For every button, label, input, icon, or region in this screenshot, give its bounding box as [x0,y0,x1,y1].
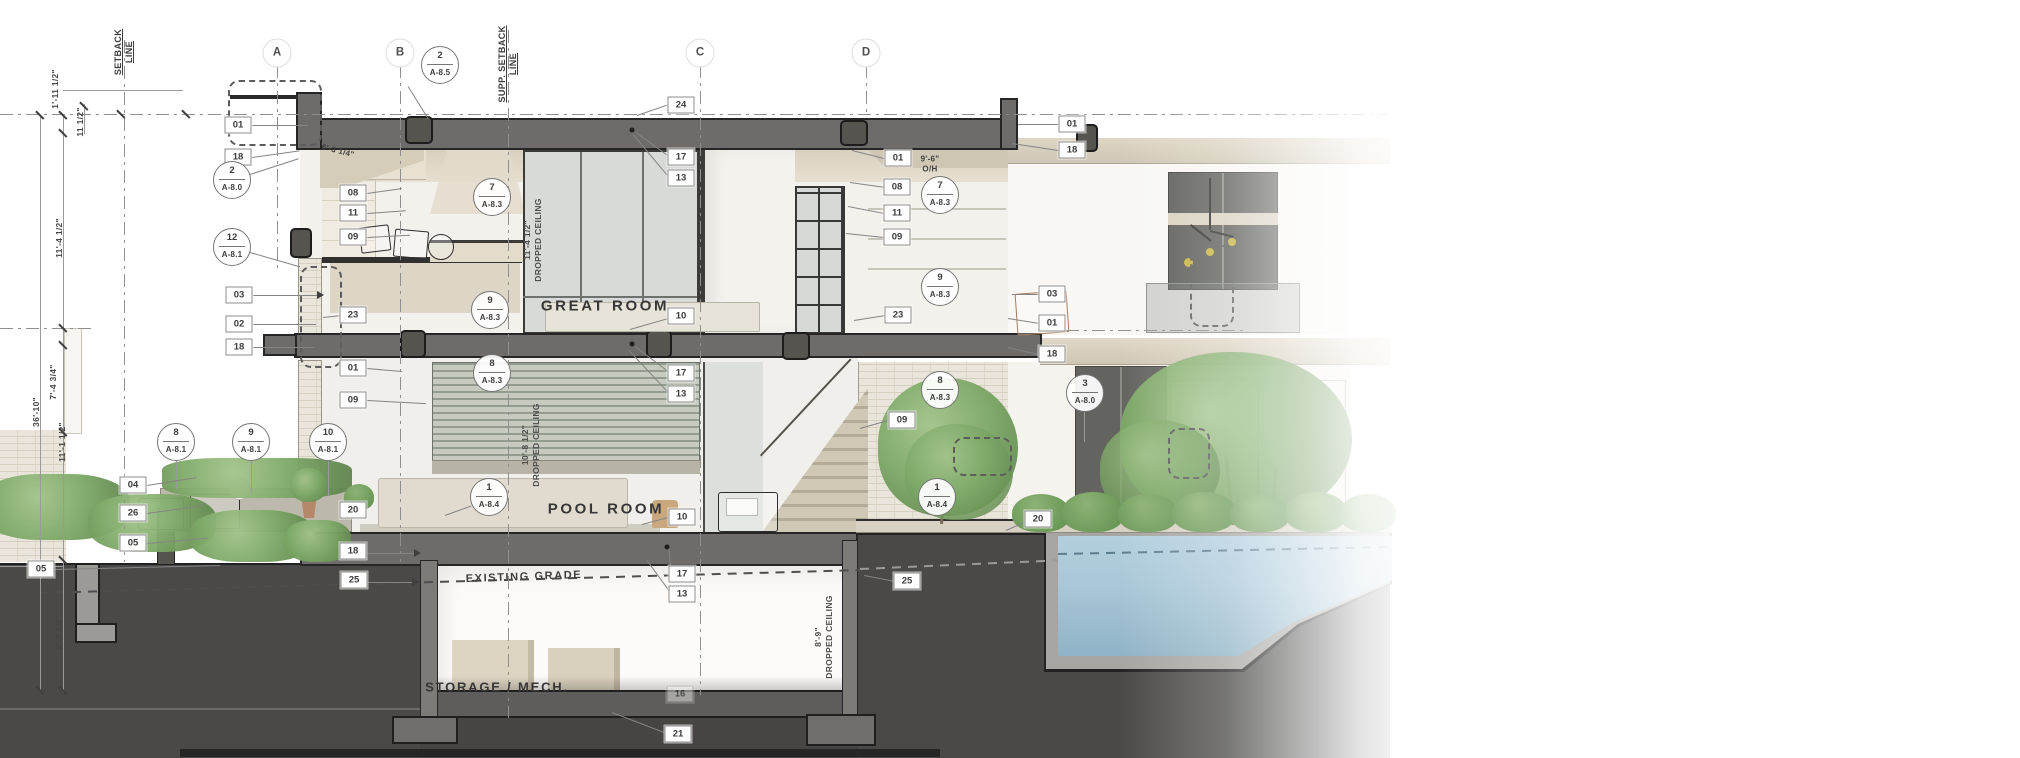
dimension-text: 11 1/2" [75,107,85,136]
detail-callout: 9A-8.1 [232,423,270,461]
ref-tag: 13 [668,386,695,403]
roof-step-right [1000,98,1018,150]
ref-tag: 09 [889,412,916,429]
ref-tag: 10 [668,308,695,325]
grid-line [866,65,867,114]
detail-box-terrace-1 [953,437,1012,476]
grid-label: C [686,39,715,68]
ceiling-note: 10'-8 1/2" DROPPED CEILING [520,403,542,486]
ref-tag: 05 [120,535,147,552]
terrace-parapet-left [64,328,82,434]
callout-sheet: A-8.3 [474,373,510,388]
grid-label: D [852,39,881,68]
ref-tag: 09 [884,229,911,246]
level-line-left [0,328,96,329]
ref-tag: 20 [1025,511,1052,528]
ref-tag: 11 [340,205,367,222]
callout-number: 10 [315,424,341,442]
ref-tag: 24 [668,97,695,114]
ref-tag: 23 [885,307,912,324]
ref-tag: 03 [1039,286,1066,303]
fade-overlay [1118,0,1428,758]
ref-tag: 20 [340,502,367,519]
detail-callout: 1A-8.4 [918,478,956,516]
detail-callout: 9A-8.3 [921,268,959,306]
detail-box-wall-left [300,266,342,368]
callout-number: 7 [927,177,953,195]
great-room-table [428,234,454,260]
callout-number: 3 [1072,375,1098,393]
detail-callout: 7A-8.3 [921,176,959,214]
pool-room-chair-cushion [726,498,758,516]
ref-tag: 17 [668,149,695,166]
ref-tag: 01 [885,150,912,167]
callout-sheet: A-8.1 [233,442,269,457]
floor-connector-door [782,332,810,360]
callout-number: 12 [219,229,245,247]
ref-tag: 02 [226,316,253,333]
retaining-wall-hill [75,563,100,625]
ref-tag: 17 [668,365,695,382]
ref-tag: 01 [1039,315,1066,332]
callout-number: 1 [476,479,502,497]
callout-sheet: A-8.3 [922,390,958,405]
wall-connector-left [290,228,312,258]
basement-wall-right [842,540,858,718]
roof-connector-c [840,120,868,146]
ref-tag: 18 [226,339,253,356]
callout-number: 2 [427,47,453,65]
detail-callout: 7A-8.3 [473,178,511,216]
annotation-text: 9'-6" O/H [921,155,940,174]
callout-sheet: A-8.1 [310,442,346,457]
balcony-nib [263,334,297,356]
callout-sheet: A-8.0 [1067,393,1103,408]
ref-tag: 25 [341,572,368,589]
detail-callout: 9A-8.3 [471,291,509,329]
callout-sheet: A-8.1 [214,247,250,262]
detail-callout: 8A-8.3 [473,354,511,392]
dimension-text: 7'-4 3/4" [48,364,58,399]
callout-number: 8 [927,372,953,390]
ext-line-top [63,90,183,91]
stone-bench [432,460,700,474]
callout-number: 2 [219,162,245,180]
ref-tag: 13 [669,586,696,603]
bottom-dark-strip [180,749,940,757]
dimension-text: 11'-4 1/2" [54,218,64,258]
dimension-text: 11'-1 1/2" [57,422,67,462]
ref-tag: 01 [1059,116,1086,133]
footing-left [392,716,458,744]
ref-tag: 09 [340,229,367,246]
ceiling-note: 8'-9" DROPPED CEILING [813,595,835,678]
ref-tag: 25 [894,573,921,590]
ref-tag: 18 [1059,142,1086,159]
detail-callout: 10A-8.1 [309,423,347,461]
building-section-drawing: ABCD SETBACK LINESUPP. SETBACK LINE 1'-1… [0,0,2020,758]
great-room-chair-2 [393,229,429,260]
callout-number: 9 [477,292,503,310]
ref-tag: 17 [669,566,696,583]
dimension-text: 1'-11 1/2" [50,69,60,109]
ref-tag: 08 [884,179,911,196]
callout-sheet: A-8.0 [214,180,250,195]
callout-number: 7 [479,179,505,197]
callout-sheet: A-8.3 [474,197,510,212]
setback-label: SUPP. SETBACK LINE [497,25,519,102]
detail-callout: 3A-8.0 [1066,374,1104,412]
callout-sheet: A-8.3 [922,287,958,302]
first-floor-slab [300,532,858,566]
callout-number: 8 [479,355,505,373]
room-label: GREAT ROOM [541,298,669,315]
footing-right [806,714,876,746]
room-label: POOL ROOM [548,501,664,518]
callout-number: 9 [927,269,953,287]
ref-tag: 03 [226,287,253,304]
ref-tag: 10 [669,509,696,526]
ref-tag: 23 [340,307,367,324]
ref-tag: 01 [225,117,252,134]
callout-number: 8 [163,424,189,442]
detail-callout: 8A-8.3 [921,371,959,409]
louver-screen [432,362,700,462]
ref-tag: 09 [340,392,367,409]
ceiling-note: 11'-4 1/2" DROPPED CEILING [522,198,544,281]
ref-tag: 18 [340,543,367,560]
detail-callout: 1A-8.4 [470,478,508,516]
detail-callout: 12A-8.1 [213,228,251,266]
ref-tag: 16 [667,686,694,703]
ground-line-left [0,708,420,710]
floor-connector-left [400,330,426,358]
french-door [795,186,845,334]
ref-tag: 11 [884,205,911,222]
ref-tag: 18 [1039,346,1066,363]
dim-line-inner [63,115,64,692]
ref-tag: 21 [665,726,692,743]
white-margin [1424,0,2020,758]
detail-callout: 8A-8.1 [157,423,195,461]
floor-connector-c [646,330,672,358]
room-label: STORAGE / MECH. [425,680,569,695]
dimension-text: 36'-10" [31,397,41,427]
dimension-text: 9'-7 1/2" [54,614,64,649]
retaining-wall-foot [75,623,117,643]
ref-tag: 13 [668,170,695,187]
callout-number: 1 [924,479,950,497]
grid-label: B [386,39,415,68]
ref-tag: 01 [340,360,367,377]
detail-callout: 2A-8.0 [213,161,251,199]
setback-label: SETBACK LINE [113,29,135,75]
ref-tag: 04 [120,477,147,494]
hedge-row-pool-2 [1062,492,1124,532]
detail-callout: 2A-8.5 [421,46,459,84]
grid-label: A [263,39,292,68]
roof-connector-b [405,116,433,144]
callout-sheet: A-8.5 [422,65,458,80]
grid-line [400,65,401,562]
grid-line [700,65,701,695]
ref-tag: 26 [120,505,147,522]
callout-sheet: A-8.1 [158,442,194,457]
callout-sheet: A-8.4 [919,497,955,512]
callout-sheet: A-8.4 [471,497,507,512]
pot-plant [290,468,328,502]
ref-tag: 05 [28,561,55,578]
callout-sheet: A-8.3 [922,195,958,210]
callout-sheet: A-8.3 [472,310,508,325]
callout-number: 9 [238,424,264,442]
ref-tag: 08 [340,185,367,202]
detail-box-roof-left [228,80,322,146]
